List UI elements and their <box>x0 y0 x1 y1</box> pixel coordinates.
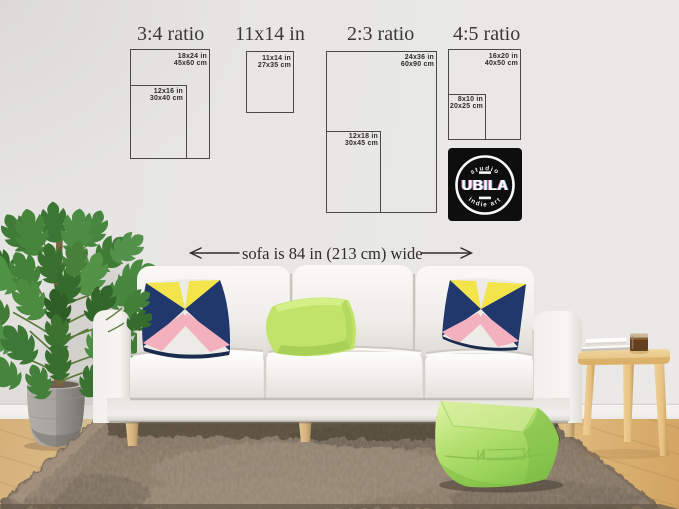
svg-text:UBILA: UBILA <box>462 178 509 194</box>
